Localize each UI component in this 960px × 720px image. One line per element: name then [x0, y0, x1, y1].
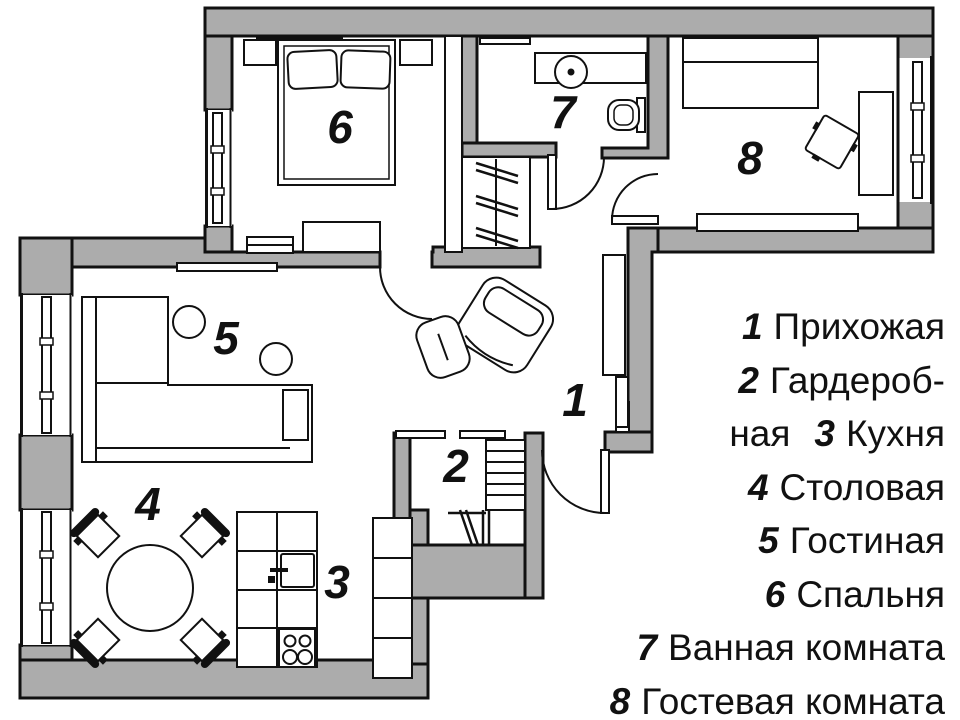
- room-number-7: 7: [550, 86, 578, 138]
- legend-label: Гостиная: [790, 520, 945, 561]
- sofa: [683, 38, 818, 108]
- wardrobe-top-wall: [396, 431, 445, 438]
- legend-label: Столовая: [780, 467, 945, 508]
- room-number-2: 2: [442, 440, 469, 492]
- legend-label: Спальня: [796, 574, 945, 615]
- guest-room-door: [612, 174, 658, 224]
- desk-chair: [799, 113, 863, 175]
- legend-label: Ванная комната: [668, 627, 945, 668]
- wall-segment: [205, 36, 232, 110]
- legend-row: 6Спальня: [505, 568, 945, 622]
- desk: [859, 92, 893, 195]
- legend-row: 1Прихожая: [505, 300, 945, 354]
- door-leaf: [548, 155, 556, 209]
- legend-number: 2: [738, 360, 759, 401]
- door-arc: [612, 174, 658, 220]
- legend-number: 5: [758, 520, 779, 561]
- window-bedroom: [205, 108, 232, 228]
- door-leaf: [612, 216, 658, 224]
- legend-number: 7: [636, 627, 657, 668]
- legend-row: 7Ванная комната: [505, 621, 945, 675]
- dining-table: [107, 545, 193, 631]
- vanity-counter: [535, 53, 646, 83]
- wardrobe-top-wall: [460, 431, 505, 438]
- armrest: [283, 390, 308, 440]
- legend-label: Гардероб-: [770, 360, 945, 401]
- wall-segment: [205, 8, 933, 36]
- legend-row: 5Гостиная: [505, 514, 945, 568]
- room-number-8: 8: [737, 132, 763, 184]
- legend-number: 4: [748, 467, 769, 508]
- legend-number: 1: [742, 306, 763, 347]
- guest-room-furniture: [683, 38, 893, 231]
- washbasin-drain: [569, 70, 574, 75]
- wall-segment: [20, 238, 72, 295]
- pillow: [340, 50, 390, 89]
- dresser: [303, 222, 380, 252]
- dining-chair: [70, 508, 124, 562]
- bath-shelf: [480, 38, 530, 44]
- legend-label: Прихожая: [774, 306, 945, 347]
- dining-chair: [177, 508, 231, 562]
- wall-segment: [462, 143, 556, 157]
- bench: [247, 245, 293, 253]
- closet: [462, 157, 530, 248]
- legend: 1Прихожая 2Гардероб- ная3Кухня 4Столовая…: [505, 300, 945, 720]
- side-table: [260, 343, 292, 375]
- legend-row: 4Столовая: [505, 461, 945, 515]
- window-guest: [898, 56, 933, 204]
- legend-wrap: ная: [729, 413, 790, 454]
- legend-number: 6: [765, 574, 786, 615]
- legend-label: Гостевая комната: [641, 681, 945, 720]
- legend-label: Кухня: [846, 413, 945, 454]
- door-arc: [552, 157, 604, 209]
- legend-number: 8: [610, 681, 631, 720]
- legend-row: 8Гостевая комната: [505, 675, 945, 720]
- bedroom-right-wall: [445, 36, 462, 252]
- bedroom-furniture: [244, 36, 462, 253]
- window-dining: [20, 508, 72, 647]
- stove: [279, 629, 315, 667]
- wardrobe-hangers: [448, 510, 489, 545]
- room-number-6: 6: [327, 101, 353, 153]
- legend-row: ная3Кухня: [505, 407, 945, 461]
- cabinet-column: [373, 518, 412, 678]
- room-number-5: 5: [213, 312, 240, 364]
- floor-plan-page: 1 2 3 4 5 6 7 8 1Прихожая 2Гардероб- ная…: [0, 0, 960, 720]
- room-number-3: 3: [324, 556, 350, 608]
- wall-segment: [20, 435, 72, 510]
- bedroom-door: [380, 267, 432, 319]
- side-table: [173, 306, 205, 338]
- wall-segment: [20, 660, 428, 698]
- nightstand-right: [400, 40, 432, 65]
- tv-console: [177, 263, 277, 271]
- room-number-4: 4: [134, 478, 161, 530]
- door-arc: [380, 267, 432, 319]
- pillow: [287, 50, 338, 90]
- legend-number: 3: [814, 413, 835, 454]
- nightstand-left: [244, 40, 276, 65]
- bench: [247, 237, 293, 245]
- legend-row: 2Гардероб-: [505, 354, 945, 408]
- toilet: [608, 98, 645, 132]
- low-cabinet: [697, 214, 858, 231]
- window-living: [20, 293, 72, 437]
- wall-segment: [205, 226, 232, 252]
- living-furniture: [82, 263, 312, 462]
- dining-furniture: [70, 508, 231, 669]
- bathroom-door: [548, 155, 604, 209]
